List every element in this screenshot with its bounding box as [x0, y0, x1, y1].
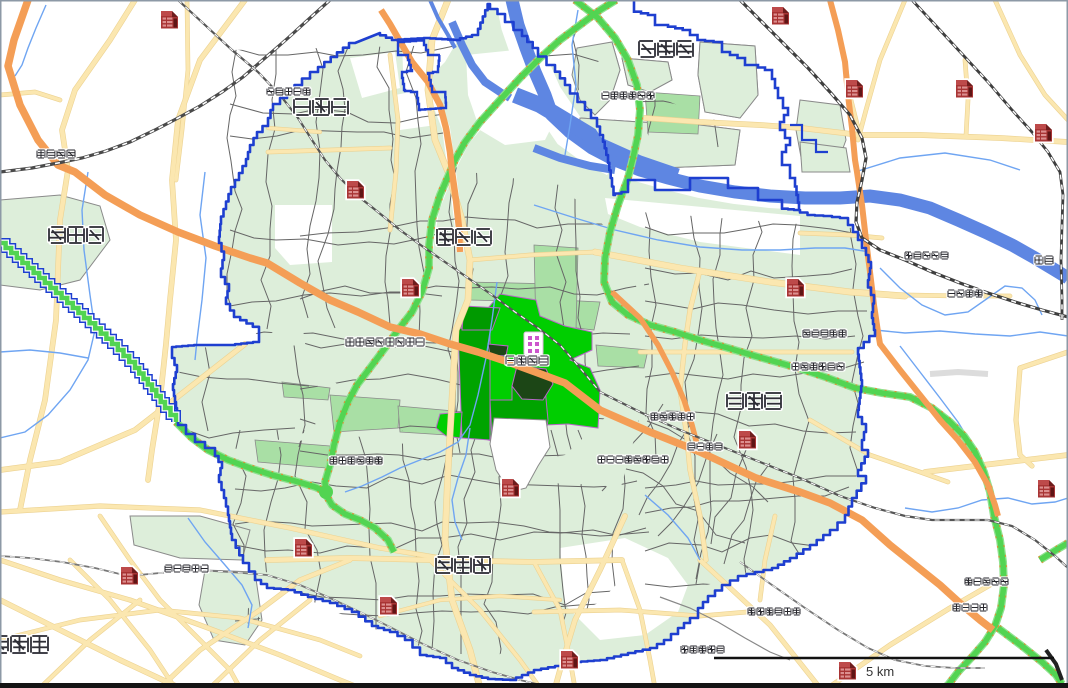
svg-text:5 km: 5 km [866, 664, 894, 679]
